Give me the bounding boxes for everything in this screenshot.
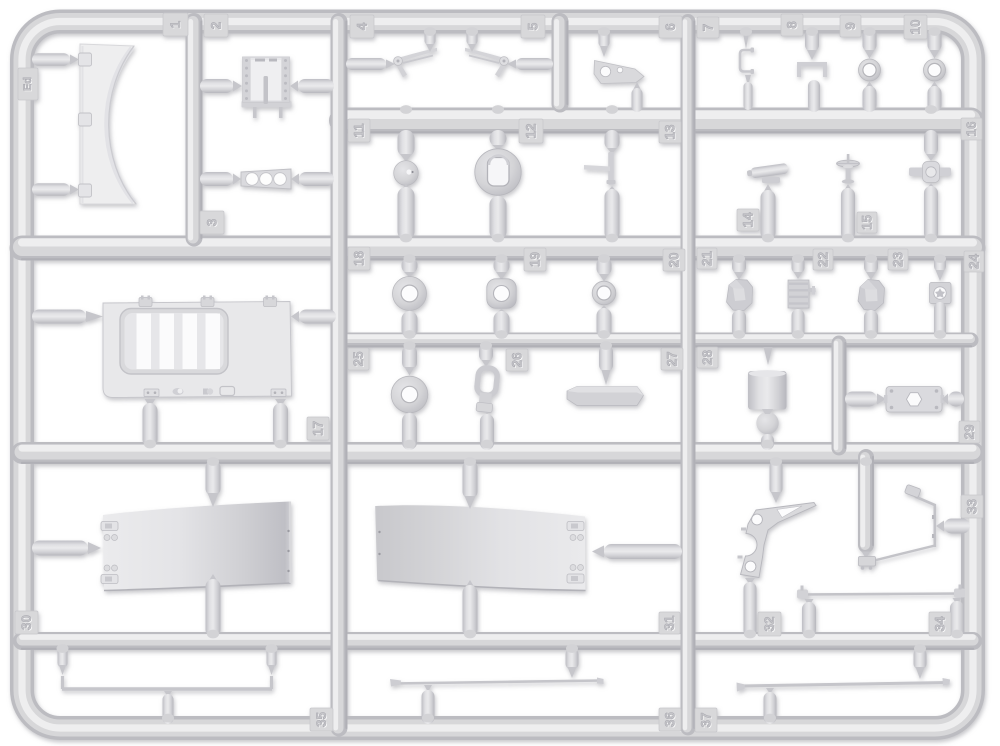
- svg-text:16: 16: [964, 121, 979, 137]
- svg-text:26: 26: [510, 352, 525, 368]
- svg-text:34: 34: [933, 616, 948, 632]
- svg-text:1: 1: [168, 20, 183, 28]
- svg-text:28: 28: [700, 350, 715, 366]
- svg-text:7: 7: [701, 24, 716, 32]
- svg-text:31: 31: [662, 615, 677, 631]
- svg-text:14: 14: [741, 212, 756, 228]
- svg-text:6: 6: [663, 23, 678, 31]
- svg-text:23: 23: [891, 252, 906, 268]
- svg-text:12: 12: [524, 123, 539, 138]
- svg-text:29: 29: [962, 424, 977, 439]
- svg-text:3: 3: [205, 218, 220, 226]
- svg-text:33: 33: [965, 499, 980, 515]
- svg-text:27: 27: [665, 351, 680, 366]
- svg-text:18: 18: [352, 251, 367, 267]
- svg-text:13: 13: [663, 124, 678, 140]
- svg-text:2: 2: [209, 22, 224, 30]
- svg-text:19: 19: [528, 252, 543, 267]
- svg-text:30: 30: [19, 615, 34, 630]
- svg-text:4: 4: [355, 22, 370, 30]
- svg-text:8: 8: [785, 21, 800, 29]
- svg-text:21: 21: [700, 251, 715, 267]
- svg-text:20: 20: [667, 252, 682, 267]
- svg-text:35: 35: [314, 712, 329, 728]
- svg-text:22: 22: [816, 252, 831, 267]
- svg-text:15: 15: [860, 215, 875, 231]
- svg-text:36: 36: [663, 712, 678, 728]
- svg-text:17: 17: [311, 421, 326, 436]
- svg-text:10: 10: [908, 19, 923, 34]
- svg-text:5: 5: [526, 22, 541, 30]
- svg-text:9: 9: [843, 22, 858, 30]
- svg-text:Ed: Ed: [22, 77, 34, 91]
- svg-text:32: 32: [762, 616, 777, 631]
- svg-text:11: 11: [352, 123, 367, 138]
- svg-text:24: 24: [967, 254, 982, 270]
- svg-text:25: 25: [351, 351, 366, 367]
- svg-text:37: 37: [699, 712, 714, 727]
